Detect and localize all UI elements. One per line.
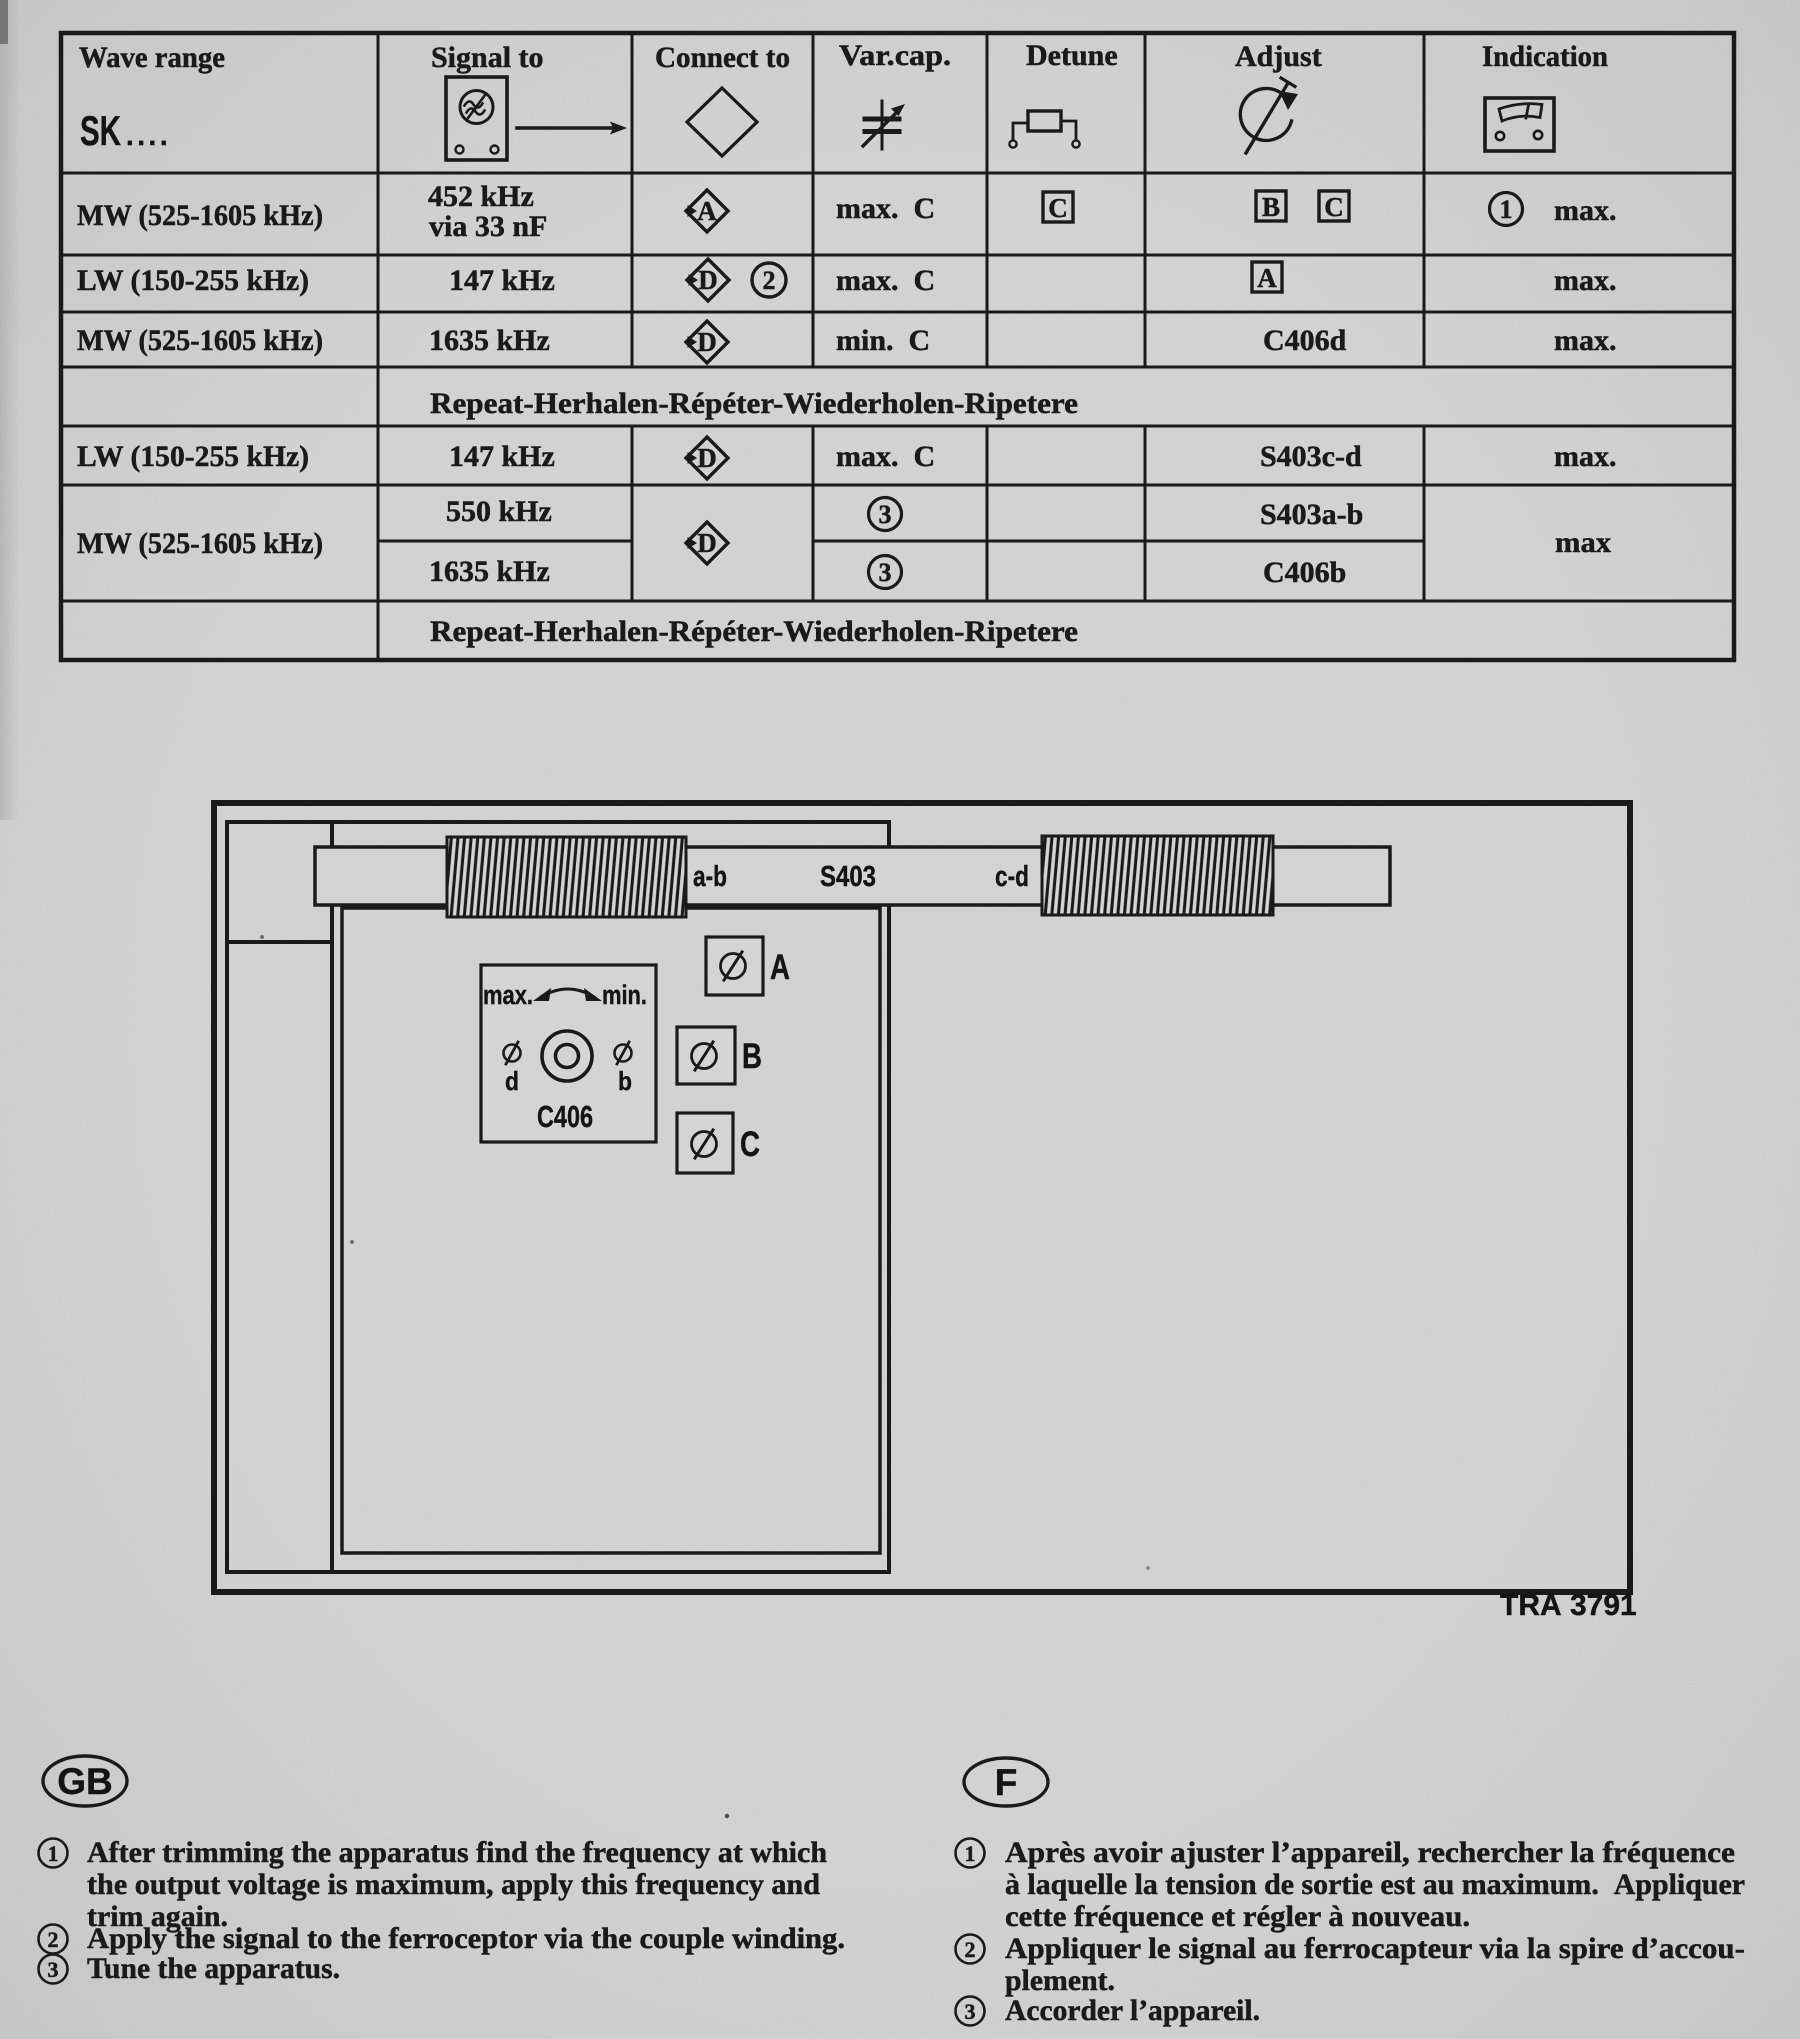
svg-text:1635 kHz: 1635 kHz xyxy=(429,555,550,588)
svg-text:LW (150-255 kHz): LW (150-255 kHz) xyxy=(77,264,309,297)
svg-text:Repeat-Herhalen-Répéter-Wieder: Repeat-Herhalen-Répéter-Wiederholen-Ripe… xyxy=(430,387,1078,420)
svg-text:452 kHz: 452 kHz xyxy=(428,180,534,213)
svg-text:MW (525-1605 kHz): MW (525-1605 kHz) xyxy=(77,527,323,560)
svg-text:Signal to: Signal to xyxy=(431,41,544,74)
svg-text:a-b: a-b xyxy=(693,861,727,893)
svg-text:2: 2 xyxy=(763,266,776,295)
svg-text:F: F xyxy=(995,1762,1018,1803)
svg-text:C: C xyxy=(740,1125,760,1164)
svg-text:MW (525-1605 kHz): MW (525-1605 kHz) xyxy=(77,199,323,232)
svg-text:C: C xyxy=(1324,192,1344,222)
svg-text:1: 1 xyxy=(1500,195,1513,224)
svg-text:3: 3 xyxy=(879,558,892,587)
svg-text:D: D xyxy=(698,265,718,295)
svg-text:max. C: max. C xyxy=(836,192,935,225)
svg-text:S403: S403 xyxy=(820,861,876,893)
svg-text:After trimming the apparatus f: After trimming the apparatus find the fr… xyxy=(87,1836,827,1869)
svg-text:A: A xyxy=(697,196,717,226)
svg-text:S403a-b: S403a-b xyxy=(1260,498,1363,531)
svg-text:max.: max. xyxy=(483,980,533,1010)
svg-text:via 33 nF: via 33 nF xyxy=(429,210,547,243)
svg-text:1635 kHz: 1635 kHz xyxy=(429,324,550,357)
svg-text:2: 2 xyxy=(48,1927,59,1952)
svg-text:D: D xyxy=(697,443,717,473)
svg-text:plement.: plement. xyxy=(1005,1964,1115,1997)
svg-text:max.: max. xyxy=(1554,264,1617,297)
svg-text:550 kHz: 550 kHz xyxy=(446,495,552,528)
svg-text:Accorder l’appareil.: Accorder l’appareil. xyxy=(1005,1994,1260,2027)
svg-text:TRA 3791: TRA 3791 xyxy=(1500,1589,1637,1622)
svg-text:c-d: c-d xyxy=(995,861,1029,893)
svg-text:Après avoir ajuster l’appareil: Après avoir ajuster l’appareil, recherch… xyxy=(1005,1836,1735,1869)
svg-text:A: A xyxy=(1257,263,1277,293)
svg-text:C406d: C406d xyxy=(1263,324,1347,357)
svg-text:1: 1 xyxy=(965,1841,976,1866)
svg-text:max. C: max. C xyxy=(836,440,935,473)
svg-text:min. C: min. C xyxy=(836,324,930,357)
svg-text:min.: min. xyxy=(602,980,647,1010)
svg-text:à laquelle la tension de sorti: à laquelle la tension de sortie est au m… xyxy=(1005,1868,1745,1901)
svg-text:max: max xyxy=(1555,526,1611,559)
svg-text:D: D xyxy=(697,528,717,558)
svg-text:Var.cap.: Var.cap. xyxy=(839,39,951,72)
svg-text:d: d xyxy=(505,1066,519,1096)
svg-text:max.: max. xyxy=(1554,194,1617,227)
svg-text:147 kHz: 147 kHz xyxy=(449,440,555,473)
svg-text:B: B xyxy=(1262,192,1280,222)
svg-text:3: 3 xyxy=(48,1957,59,1982)
svg-text:max.: max. xyxy=(1554,324,1617,357)
svg-text:max.: max. xyxy=(1554,440,1617,473)
svg-text:Connect to: Connect to xyxy=(655,41,790,74)
svg-text:LW (150-255 kHz): LW (150-255 kHz) xyxy=(77,440,309,473)
svg-text:3: 3 xyxy=(965,1999,976,2024)
svg-text:b: b xyxy=(618,1066,632,1096)
svg-text:MW (525-1605 kHz): MW (525-1605 kHz) xyxy=(77,324,323,357)
svg-text:C406b: C406b xyxy=(1263,556,1346,589)
svg-text:Repeat-Herhalen-Répéter-Wieder: Repeat-Herhalen-Répéter-Wiederholen-Ripe… xyxy=(430,615,1078,648)
svg-text:B: B xyxy=(742,1037,762,1076)
svg-text:C406: C406 xyxy=(537,1099,593,1134)
svg-text:Tune the apparatus.: Tune the apparatus. xyxy=(87,1952,340,1985)
svg-text:D: D xyxy=(697,327,717,357)
svg-text:the output voltage is maximum,: the output voltage is maximum, apply thi… xyxy=(87,1868,820,1901)
svg-text:2: 2 xyxy=(965,1937,976,1962)
svg-text:Indication: Indication xyxy=(1482,40,1608,73)
svg-text:1: 1 xyxy=(48,1841,59,1866)
svg-text:C: C xyxy=(1048,193,1068,223)
svg-text:3: 3 xyxy=(879,500,892,529)
svg-text:Adjust: Adjust xyxy=(1235,40,1322,73)
svg-text:Wave range: Wave range xyxy=(79,41,225,74)
svg-text:cette fréquence et régler à no: cette fréquence et régler à nouveau. xyxy=(1005,1900,1470,1933)
svg-text:Detune: Detune xyxy=(1026,39,1118,72)
svg-text:S403c-d: S403c-d xyxy=(1260,440,1362,473)
svg-text:Appliquer le signal au ferroca: Appliquer le signal au ferrocapteur via … xyxy=(1005,1932,1745,1965)
svg-text:147 kHz: 147 kHz xyxy=(449,264,555,297)
svg-text:GB: GB xyxy=(57,1761,113,1802)
svg-text:max. C: max. C xyxy=(836,264,935,297)
svg-text:A: A xyxy=(770,948,790,987)
svg-text:Apply the signal to the ferroc: Apply the signal to the ferroceptor via … xyxy=(87,1922,845,1955)
